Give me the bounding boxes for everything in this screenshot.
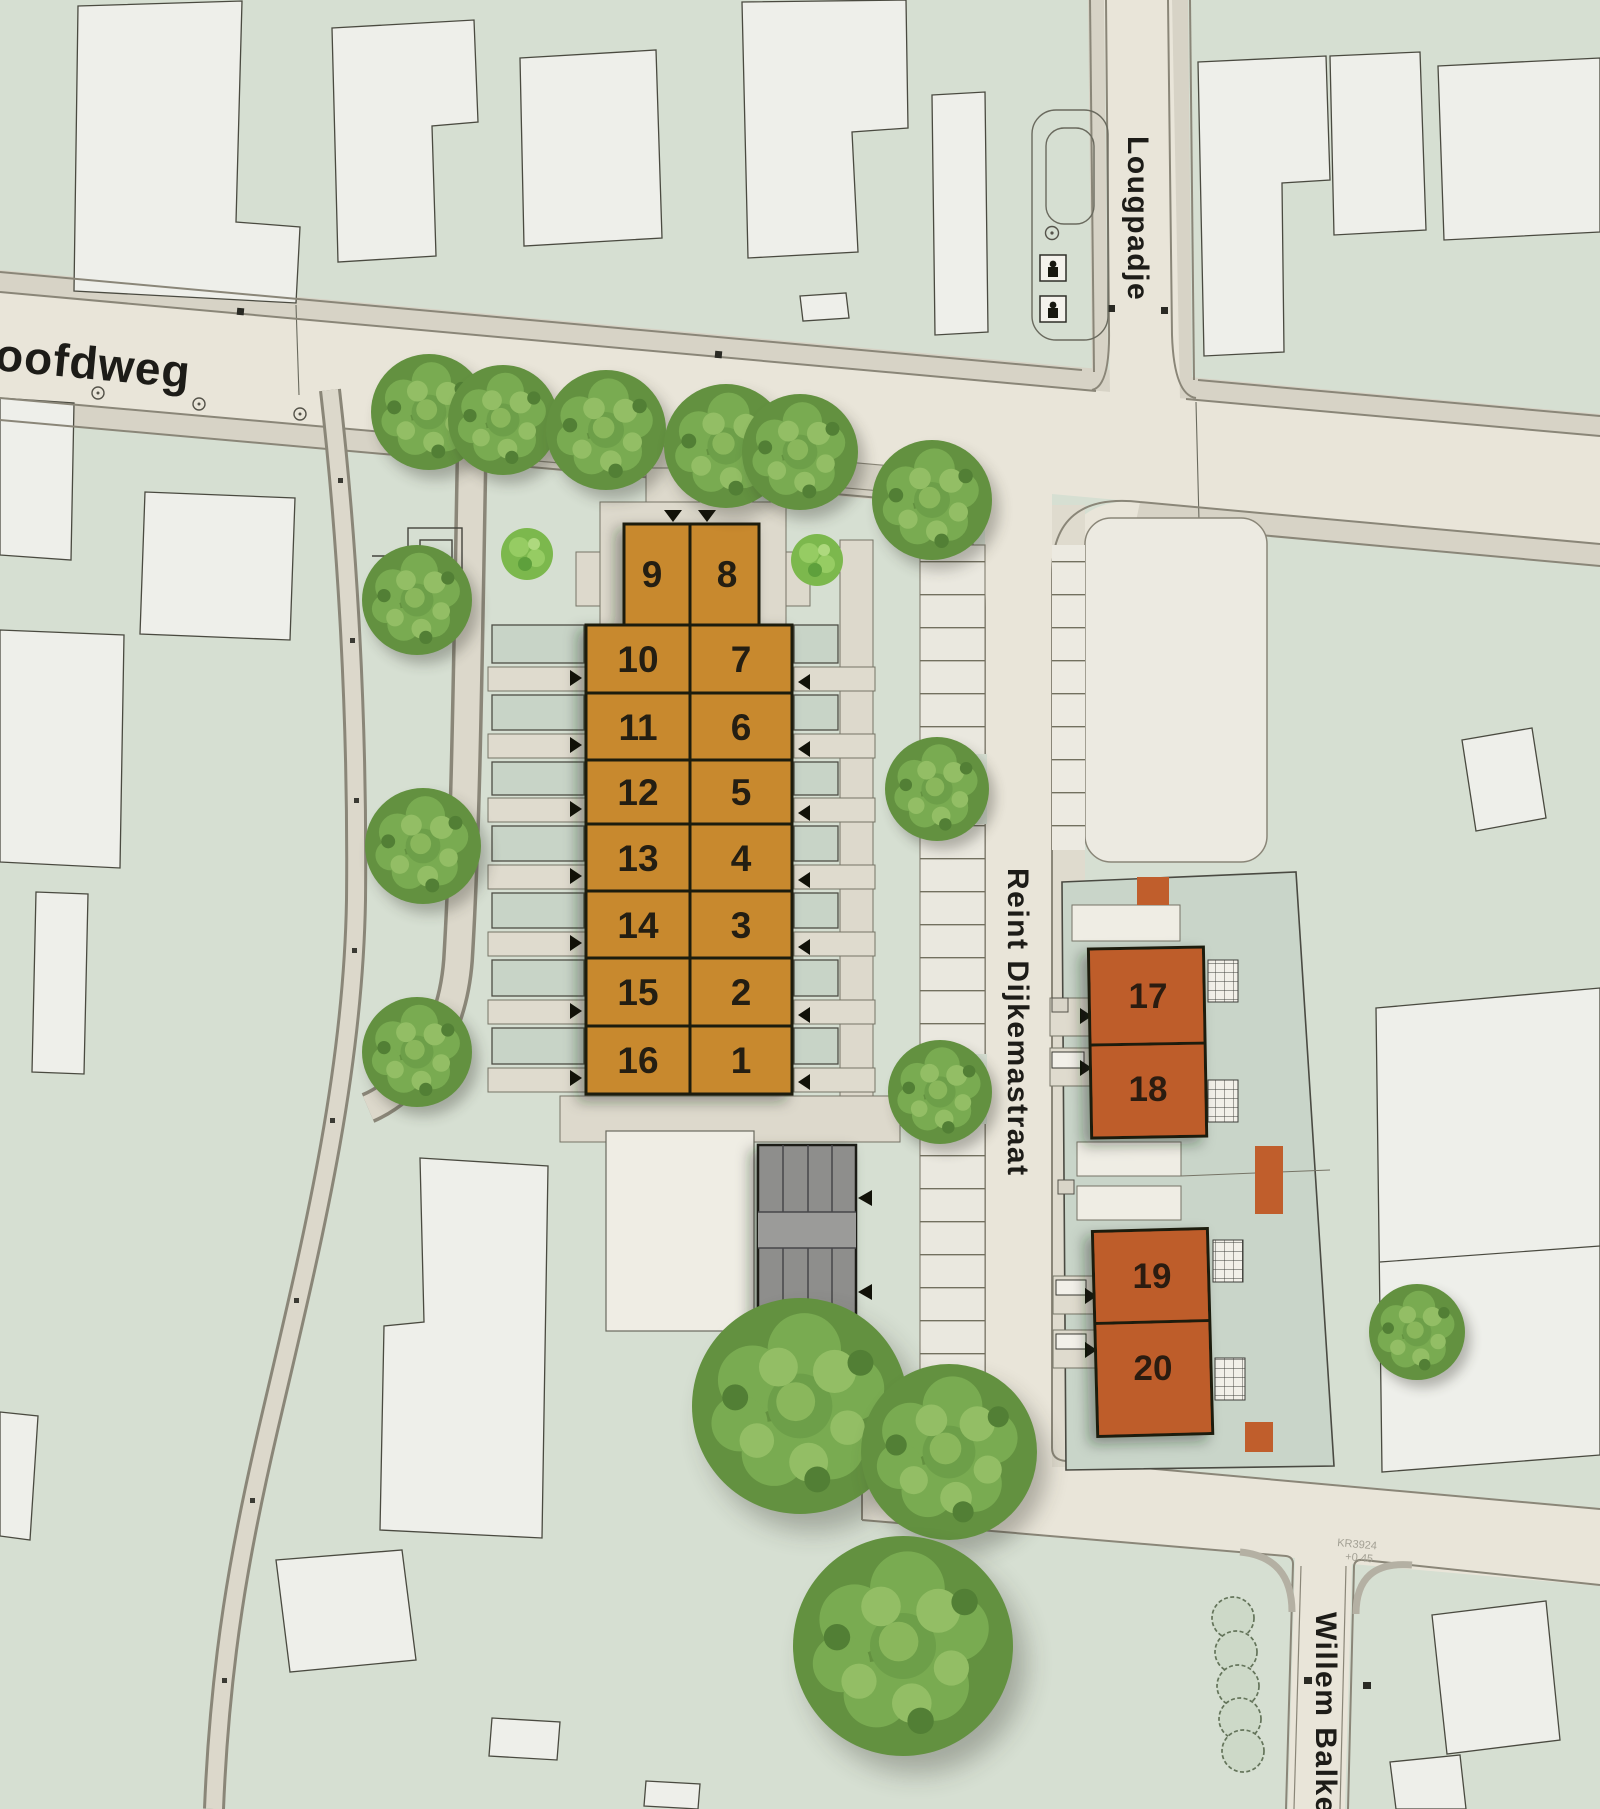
building xyxy=(644,1781,700,1809)
site-plan-svg: 9 8 10 7 11 6 12 5 13 4 14 3 15 2 16 1 1… xyxy=(0,0,1600,1809)
plot-number: 9 xyxy=(642,554,663,595)
parking-lot xyxy=(1085,518,1267,862)
building xyxy=(520,50,662,246)
plot-number: 7 xyxy=(731,639,752,680)
plot-number: 12 xyxy=(617,772,658,813)
map-symbol-icon xyxy=(1040,255,1066,281)
parking-court xyxy=(606,1131,754,1331)
elevation-annotation: +0.45 xyxy=(1345,1551,1374,1565)
street-label-lougpadje: Lougpadje xyxy=(1121,136,1154,301)
plot-number: 6 xyxy=(731,707,752,748)
plot-number: 15 xyxy=(617,972,658,1013)
building xyxy=(140,492,295,640)
plot-number: 20 xyxy=(1134,1349,1173,1388)
plot-number: 10 xyxy=(617,639,658,680)
plot-number: 3 xyxy=(731,905,752,946)
plot-number: 2 xyxy=(731,972,752,1013)
street-label-reint-dijkemastraat: Reint Dijkemastraat xyxy=(1001,868,1034,1177)
site-plan-canvas: 9 8 10 7 11 6 12 5 13 4 14 3 15 2 16 1 1… xyxy=(0,0,1600,1809)
plot-number: 14 xyxy=(617,905,659,946)
building xyxy=(1376,988,1600,1472)
map-symbol-icon xyxy=(1040,296,1066,322)
building xyxy=(800,293,849,321)
building xyxy=(1330,52,1426,235)
building xyxy=(932,92,988,335)
plot-number: 16 xyxy=(617,1040,658,1081)
street-parking-east xyxy=(1052,518,1267,862)
building xyxy=(1390,1755,1466,1809)
street-label-willem-balkemastraat: Willem Balkema xyxy=(1309,1612,1342,1809)
plot-number: 4 xyxy=(731,838,752,879)
building xyxy=(1438,58,1600,240)
building xyxy=(1432,1601,1560,1754)
building xyxy=(276,1550,416,1672)
walkway-step xyxy=(576,552,600,606)
bush xyxy=(791,534,843,586)
plot-number: 17 xyxy=(1129,977,1168,1016)
plot-number: 11 xyxy=(618,707,657,748)
plot-number: 1 xyxy=(731,1040,752,1081)
building xyxy=(0,630,124,868)
gardens-west xyxy=(488,625,586,1092)
plot-number: 8 xyxy=(717,554,738,595)
building xyxy=(32,892,88,1074)
plot-number: 18 xyxy=(1129,1070,1168,1109)
plot-block-17-18 xyxy=(1088,947,1206,1138)
building xyxy=(1462,728,1546,831)
street-parking-west xyxy=(918,545,987,1445)
plot-number: 13 xyxy=(617,838,658,879)
bush xyxy=(501,528,553,580)
garage-block xyxy=(758,1145,856,1325)
plot-number: 5 xyxy=(731,772,752,813)
plot-number: 19 xyxy=(1133,1257,1172,1296)
building xyxy=(489,1718,560,1760)
